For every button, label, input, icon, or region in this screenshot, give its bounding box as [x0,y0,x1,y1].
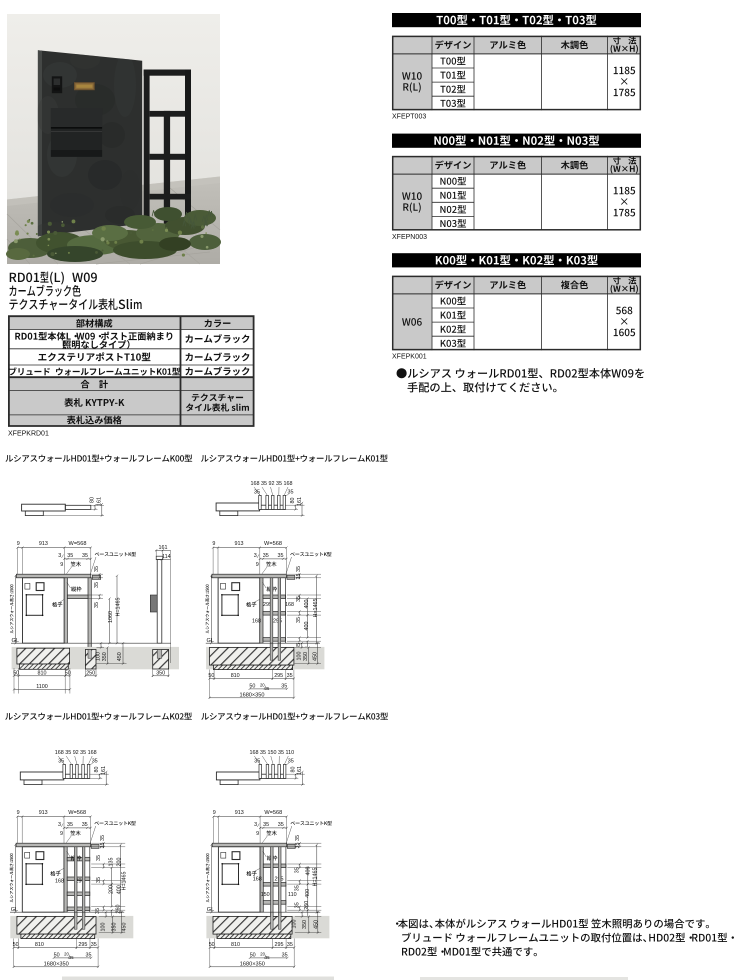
svg-text:1680×350: 1680×350 [240,961,265,967]
svg-text:50: 50 [13,942,19,948]
svg-text:161: 161 [297,766,303,775]
svg-text:135: 135 [109,858,115,867]
svg-text:168: 168 [55,879,64,885]
svg-text:168: 168 [252,619,261,625]
svg-text:GL: GL [11,907,18,913]
svg-text:35: 35 [82,822,88,828]
svg-text:35: 35 [94,566,100,572]
svg-text:913: 913 [235,541,244,547]
svg-text:9: 9 [256,562,259,568]
svg-text:450: 450 [312,652,318,661]
svg-text:810: 810 [35,942,44,948]
svg-text:35: 35 [263,553,269,559]
svg-text:1100: 1100 [36,684,48,690]
svg-text:35: 35 [278,553,284,559]
svg-text:913: 913 [235,810,244,816]
svg-text:GL: GL [207,907,214,913]
svg-text:35: 35 [95,908,101,914]
svg-text:80: 80 [90,497,96,503]
svg-text:150: 150 [261,892,270,898]
svg-text:810: 810 [231,942,240,948]
svg-text:400: 400 [304,622,310,631]
svg-text:W=568: W=568 [68,810,86,816]
svg-text:H=1465: H=1465 [122,871,128,890]
svg-text:450: 450 [122,923,128,932]
svg-text:XFEPK001: XFEPK001 [392,354,427,361]
svg-text:295: 295 [274,673,283,679]
svg-text:350: 350 [303,652,309,661]
svg-text:H=1465: H=1465 [116,597,122,616]
svg-text:35: 35 [100,843,106,849]
svg-text:168: 168 [253,877,262,883]
svg-text:35: 35 [67,822,73,828]
svg-text:1680×350: 1680×350 [239,692,264,698]
svg-text:9: 9 [60,562,63,568]
svg-text:35: 35 [282,952,288,958]
svg-text:168 35 92 35 168: 168 35 92 35 168 [55,750,97,756]
svg-text:35: 35 [96,877,102,883]
svg-text:350: 350 [102,652,108,661]
svg-text:50: 50 [208,673,214,679]
svg-text:3: 3 [58,553,61,559]
svg-text:35: 35 [100,835,106,841]
svg-text:913: 913 [39,810,48,816]
svg-text:200: 200 [109,885,115,894]
svg-text:295: 295 [275,942,284,948]
svg-text:9: 9 [213,810,216,816]
svg-text:400: 400 [304,600,310,609]
svg-text:9: 9 [17,541,20,547]
svg-text:3: 3 [254,553,257,559]
svg-text:110: 110 [288,892,297,898]
svg-text:35: 35 [281,683,287,689]
svg-text:3: 3 [58,822,61,828]
svg-text:35: 35 [94,582,100,588]
svg-text:100: 100 [95,652,101,661]
svg-text:1060: 1060 [108,611,114,623]
svg-text:161: 161 [159,545,168,551]
svg-text:9: 9 [256,831,259,837]
svg-text:350: 350 [302,920,308,929]
svg-text:810: 810 [231,673,240,679]
svg-text:80: 80 [94,767,100,773]
svg-text:9: 9 [17,810,20,816]
svg-text:H=1465: H=1465 [313,598,319,617]
svg-text:35: 35 [296,596,302,602]
svg-text:35: 35 [296,566,302,572]
svg-text:W=568: W=568 [264,541,282,547]
svg-text:35: 35 [67,553,73,559]
svg-text:100: 100 [101,923,107,932]
svg-text:GL: GL [12,638,19,644]
svg-text:810: 810 [38,670,47,676]
svg-text:50: 50 [13,670,19,676]
svg-text:168: 168 [285,602,294,608]
svg-text:35: 35 [91,942,97,948]
svg-text:XFEPT003: XFEPT003 [392,114,426,121]
svg-text:400: 400 [305,867,311,876]
svg-text:3: 3 [254,822,257,828]
svg-text:161: 161 [101,766,107,775]
svg-text:450: 450 [117,652,123,661]
svg-text:260: 260 [304,901,310,910]
svg-text:50: 50 [249,683,255,689]
svg-text:35: 35 [278,822,284,828]
svg-text:35: 35 [82,553,88,559]
svg-text:350: 350 [156,670,165,676]
svg-text:35: 35 [294,867,300,873]
svg-text:80: 80 [290,767,296,773]
svg-text:35: 35 [294,902,300,908]
svg-text:35: 35 [295,835,301,841]
svg-text:35: 35 [296,617,302,623]
svg-text:GL: GL [207,638,214,644]
svg-text:35: 35 [296,574,302,580]
svg-text:50: 50 [65,670,71,676]
svg-text:114: 114 [162,554,171,560]
svg-text:161: 161 [297,497,303,506]
svg-text:35: 35 [287,942,293,948]
svg-text:W=568: W=568 [264,810,282,816]
svg-text:100: 100 [297,652,303,661]
svg-text:400: 400 [305,889,311,898]
svg-text:250: 250 [86,670,95,676]
svg-text:50: 50 [54,952,60,958]
svg-text:1680×350: 1680×350 [44,961,69,967]
svg-text:35: 35 [287,673,293,679]
svg-text:35: 35 [96,855,102,861]
svg-text:35: 35 [94,602,100,608]
svg-text:350: 350 [112,923,118,932]
svg-text:35: 35 [294,885,300,891]
svg-text:35: 35 [295,843,301,849]
svg-text:168 35 92 35 168: 168 35 92 35 168 [251,481,293,487]
svg-text:XFEPN003: XFEPN003 [392,234,427,241]
svg-text:168 35 150 35 110: 168 35 150 35 110 [250,750,295,756]
svg-text:100: 100 [292,920,298,929]
svg-text:9: 9 [212,541,215,547]
svg-text:50: 50 [250,952,256,958]
svg-text:200: 200 [116,858,122,867]
svg-text:50: 50 [209,942,215,948]
svg-text:161: 161 [96,497,102,506]
svg-text:H=1465: H=1465 [313,867,319,886]
svg-text:295: 295 [78,942,87,948]
svg-text:XFEPKRD01: XFEPKRD01 [8,431,49,438]
svg-text:9: 9 [60,831,63,837]
svg-text:450: 450 [313,920,319,929]
svg-text:80: 80 [290,498,296,504]
svg-text:W=568: W=568 [69,541,87,547]
svg-text:35: 35 [263,822,269,828]
svg-text:35: 35 [86,952,92,958]
svg-text:913: 913 [39,541,48,547]
